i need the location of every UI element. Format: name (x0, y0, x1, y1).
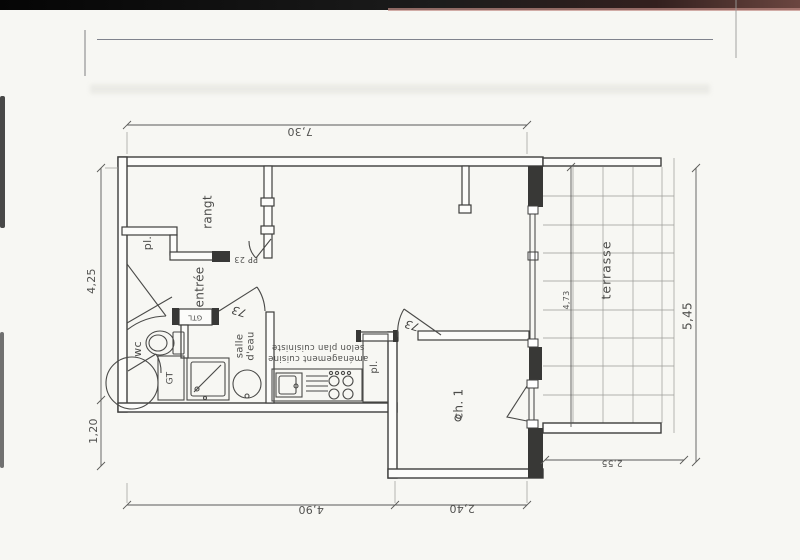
room-label-salle-deau: salle d'eau (236, 331, 257, 360)
partition-walls (122, 166, 529, 403)
annotation-pp23: PP 23 (234, 255, 258, 263)
dim-right-height: 5,45 (682, 302, 695, 330)
dim-bottom-left: 4,90 (298, 503, 324, 515)
kitchen-note-line2: selon plan cuisiniste (272, 342, 365, 352)
room-label-terrasse: terrasse (599, 240, 612, 299)
wall-piers (172, 166, 543, 478)
room-label-rangt: rangt (202, 195, 215, 229)
room-label-ch1: ch. 1 (453, 389, 466, 420)
floorplan-linework (0, 0, 800, 560)
scanned-floor-plan: rangt pl. entrée wc salle d'eau pl. ch. … (0, 0, 800, 560)
kitchen-note-line1: aménagement cuisine (268, 353, 368, 363)
annotation-gtl: GTL (188, 313, 202, 320)
shower-icon (187, 358, 229, 400)
salle-deau-line2: d'eau (245, 331, 256, 360)
salle-deau-line1: salle (235, 334, 246, 359)
dim-terrace-width: 2,55 (601, 457, 622, 466)
stove-burners-icon (329, 371, 353, 399)
room-label-entree: entrée (194, 267, 207, 308)
dim-left-upper: 4,25 (86, 268, 98, 294)
room-label-wc: wc (132, 341, 144, 357)
dim-left-lower: 1,20 (88, 418, 100, 444)
washing-machine-icon (106, 357, 158, 409)
dim-bottom-right: 2,40 (449, 502, 475, 514)
toilet-bowl-icon (146, 331, 174, 355)
annotation-gt: GT (166, 372, 175, 385)
dim-terrace-height: 4,73 (563, 290, 571, 309)
kitchen-note: aménagement cuisine selon plan cuisinist… (268, 341, 368, 363)
dim-top-width: 7,30 (287, 125, 313, 137)
room-label-pl-upper: pl. (142, 236, 154, 250)
window-frames (527, 206, 538, 428)
kitchen-counter (272, 369, 362, 401)
room-label-pl-kitchen: pl. (370, 360, 381, 373)
